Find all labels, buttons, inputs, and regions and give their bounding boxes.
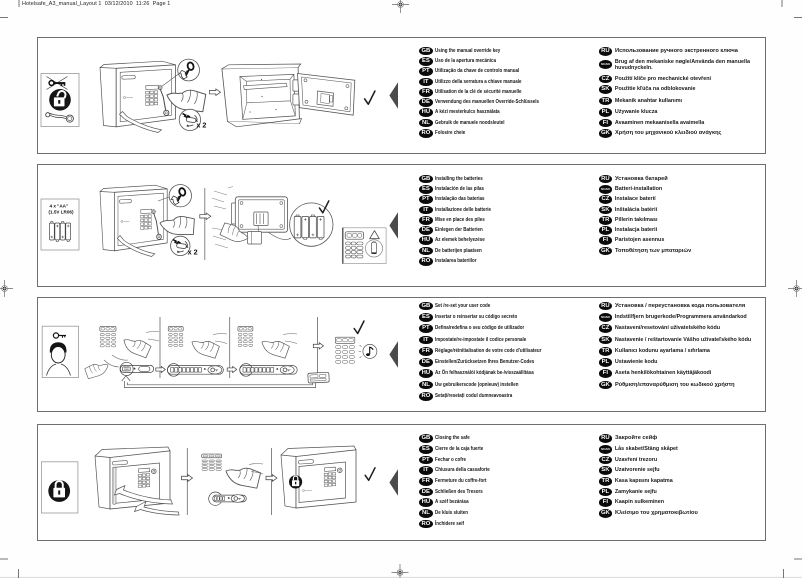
svg-text:*: *	[134, 367, 136, 373]
svg-text:x 2: x 2	[196, 121, 206, 130]
svg-text:(1.5V LR06): (1.5V LR06)	[49, 210, 74, 215]
svg-text:*: *	[276, 368, 278, 374]
svg-text:x 2: x 2	[188, 248, 198, 257]
svg-text:*: *	[228, 497, 230, 503]
svg-text:4 x "AA": 4 x "AA"	[50, 204, 69, 209]
svg-text:*: *	[204, 368, 206, 374]
